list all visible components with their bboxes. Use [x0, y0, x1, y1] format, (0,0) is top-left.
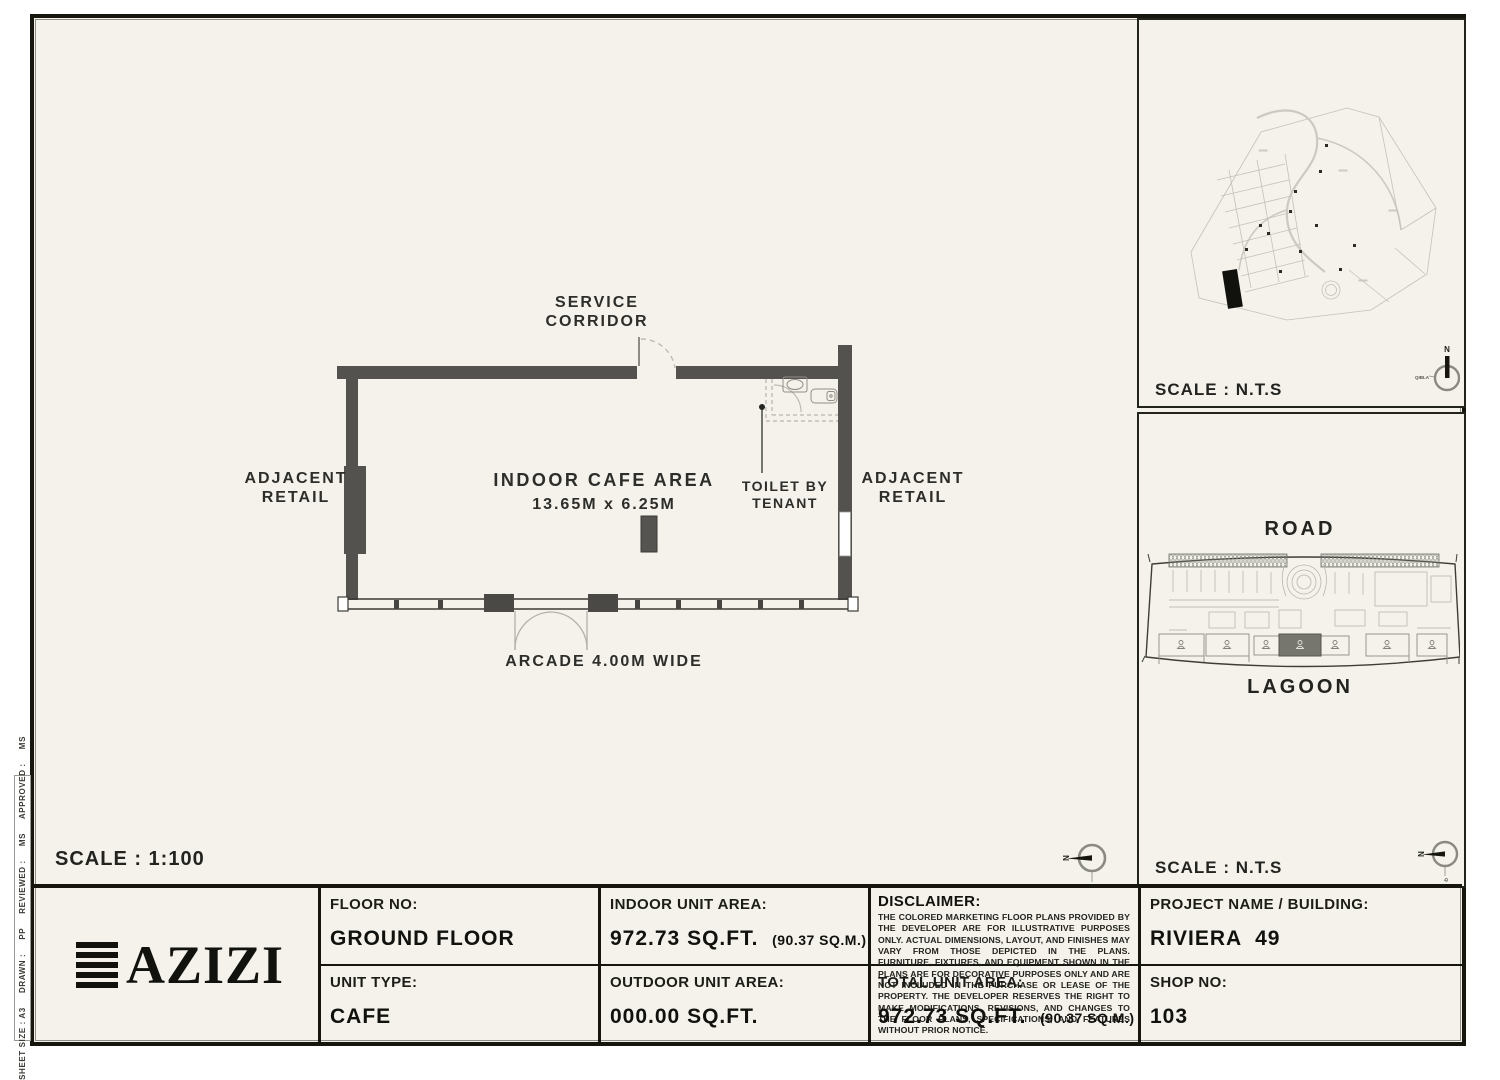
storefront-post-right: [588, 594, 618, 612]
main-scale-label: SCALE : 1:100: [55, 848, 205, 871]
sink-icon: [783, 377, 807, 392]
floor-no-label: FLOOR NO:: [330, 896, 588, 913]
window-right: [840, 512, 851, 556]
site-map-scale-label: SCALE : N.T.S: [1155, 380, 1282, 400]
outdoor-area-cell: OUTDOOR UNIT AREA: 000.00 SQ.FT.: [610, 974, 858, 1029]
total-area-cell: TOTAL UNIT AREA: 972.73 SQ.FT. (90.37 SQ…: [878, 974, 1130, 1029]
indoor-area-value: 972.73 SQ.FT. (90.37 SQ.M.): [610, 927, 858, 951]
svg-text:QIBLA: QIBLA: [1415, 375, 1430, 380]
sheet-info-strip: SHEET SIZE : A3 DRAWN : PP REVIEWED : MS…: [14, 775, 31, 1041]
column: [641, 516, 657, 552]
disclaimer-label: DISCLAIMER:: [878, 893, 1130, 910]
total-area-label: TOTAL UNIT AREA:: [878, 974, 1130, 991]
outdoor-area-value: 000.00 SQ.FT.: [610, 1005, 858, 1029]
arcade-label: ARCADE 4.00M WIDE: [464, 652, 744, 671]
key-plan-drawing: N QIBLA: [1139, 414, 1460, 882]
toilet-leader: [759, 404, 765, 473]
site-map-drawing: N QIBLA: [1139, 20, 1460, 402]
lagoon-label: LAGOON: [1200, 676, 1400, 699]
shop-no-value: 103: [1150, 1005, 1450, 1029]
site-map-compass-icon: N QIBLA: [1415, 345, 1459, 390]
azizi-logo-bars-icon: [76, 942, 118, 988]
svg-text:N: N: [1061, 855, 1070, 861]
azizi-logo: AZIZI: [76, 937, 316, 993]
key-plan-scale-label: SCALE : N.T.S: [1155, 858, 1282, 878]
indoor-cafe-label: INDOOR CAFE AREA 13.65M x 6.25M: [464, 470, 744, 514]
toilet-icon: [811, 389, 837, 403]
indoor-area-sub: (90.37 SQ.M.): [772, 932, 866, 948]
svg-text:N: N: [1444, 345, 1450, 354]
key-plan-compass-icon: N QIBLA: [1416, 842, 1457, 882]
outdoor-area-label: OUTDOOR UNIT AREA:: [610, 974, 858, 991]
storefront-post-left: [484, 594, 514, 612]
service-door: [639, 337, 675, 368]
floor-no-value: GROUND FLOOR: [330, 927, 588, 951]
total-area-value: 972.73 SQ.FT. (90.37 SQ.M.): [878, 1005, 1130, 1029]
adjacent-retail-left-label: ADJACENT RETAIL: [226, 469, 366, 507]
unit-type-cell: UNIT TYPE: CAFE: [330, 974, 588, 1029]
project-name-label: PROJECT NAME / BUILDING:: [1150, 896, 1450, 913]
total-area-sub: (90.37 SQ.M.): [1040, 1010, 1134, 1026]
shop-no-cell: SHOP NO: 103: [1150, 974, 1450, 1029]
adjacent-retail-right-label: ADJACENT RETAIL: [843, 469, 983, 507]
azizi-logo-text: AZIZI: [126, 938, 284, 992]
wall-top-left: [337, 366, 637, 379]
floor-no-cell: FLOOR NO: GROUND FLOOR: [330, 896, 588, 951]
shop-no-label: SHOP NO:: [1150, 974, 1450, 991]
svg-text:QIBLA: QIBLA: [1444, 878, 1449, 882]
unit-type-value: CAFE: [330, 1005, 588, 1029]
svg-text:N: N: [1416, 851, 1425, 857]
indoor-area-label: INDOOR UNIT AREA:: [610, 896, 858, 913]
sheet-info-text: SHEET SIZE : A3 DRAWN : PP REVIEWED : MS…: [18, 736, 27, 1080]
entry-double-door: [515, 611, 587, 650]
unit-type-label: UNIT TYPE:: [330, 974, 588, 991]
wall-top-right: [676, 366, 852, 379]
service-corridor-label: SERVICE CORRIDOR: [517, 293, 677, 331]
project-name-cell: PROJECT NAME / BUILDING: RIVIERA 49: [1150, 896, 1450, 951]
storefront: [338, 594, 858, 612]
toilet-label: TOILET BY TENANT: [715, 478, 855, 512]
site-map-highlight-building: [1222, 269, 1243, 309]
key-plan-highlight-unit: [1279, 634, 1321, 656]
indoor-area-cell: INDOOR UNIT AREA: 972.73 SQ.FT. (90.37 S…: [610, 896, 858, 951]
project-name-value: RIVIERA 49: [1150, 927, 1450, 951]
main-compass-icon: N QIBLA: [1052, 832, 1116, 888]
